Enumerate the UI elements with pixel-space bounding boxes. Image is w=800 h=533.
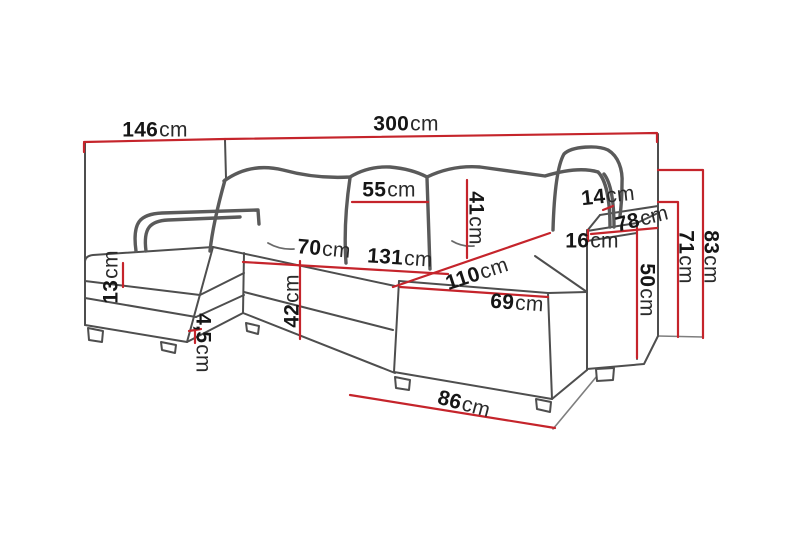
dimension-label-13: 13cm — [101, 250, 122, 304]
dimension-label-146: 146cm — [122, 120, 188, 141]
dimension-label-14: 14cm — [580, 183, 635, 209]
leg-arm — [596, 368, 614, 381]
seat-front-seam — [244, 292, 393, 330]
seat-arm-junction-edge — [535, 256, 587, 292]
arm-bottom-edge — [587, 336, 658, 369]
seat-front-bottom-edge — [243, 313, 395, 373]
leg-seat-corner — [246, 323, 259, 334]
leg-chaise-front — [161, 342, 176, 353]
ottoman-right-edge — [548, 293, 552, 399]
dimension-label-55: 55cm — [362, 180, 416, 201]
leg-chaise-back — [88, 328, 103, 342]
sofa-dimension-diagram: 146cm 300cm 55cm 41cm 14cm 78cm 16cm 83c… — [0, 0, 800, 533]
dimension-label-83: 83cm — [701, 230, 722, 284]
cushion-wrinkle-left — [268, 243, 294, 249]
dimension-label-131: 131cm — [367, 245, 434, 271]
floor-extension-line — [553, 376, 597, 429]
right-bottom-extension — [658, 336, 703, 337]
dimension-label-45: 4,5cm — [193, 313, 214, 373]
ottoman-top-to-arm-edge — [548, 292, 587, 293]
left-armrest-inner — [145, 217, 240, 251]
dimension-label-42: 42cm — [282, 274, 303, 328]
dimension-label-16: 16cm — [565, 231, 619, 252]
back-left-corner-edge — [225, 140, 226, 178]
chaise-seam-upper-side — [200, 273, 244, 295]
dimension-label-50: 50cm — [637, 263, 658, 317]
leg-ottoman-right — [536, 399, 551, 412]
dimension-label-41: 41cm — [466, 191, 487, 245]
dimension-label-300: 300cm — [373, 114, 439, 135]
dimension-label-69: 69cm — [490, 291, 545, 316]
cushion-left-edge — [210, 180, 225, 251]
dimension-line-300 — [225, 133, 657, 142]
ottoman-left-edge — [394, 281, 399, 372]
dimension-label-70: 70cm — [296, 236, 351, 262]
dimension-lines — [84, 133, 703, 428]
leg-ottoman-left — [395, 377, 410, 390]
sofa-legs — [88, 323, 614, 412]
dimension-label-71: 71cm — [676, 230, 697, 284]
